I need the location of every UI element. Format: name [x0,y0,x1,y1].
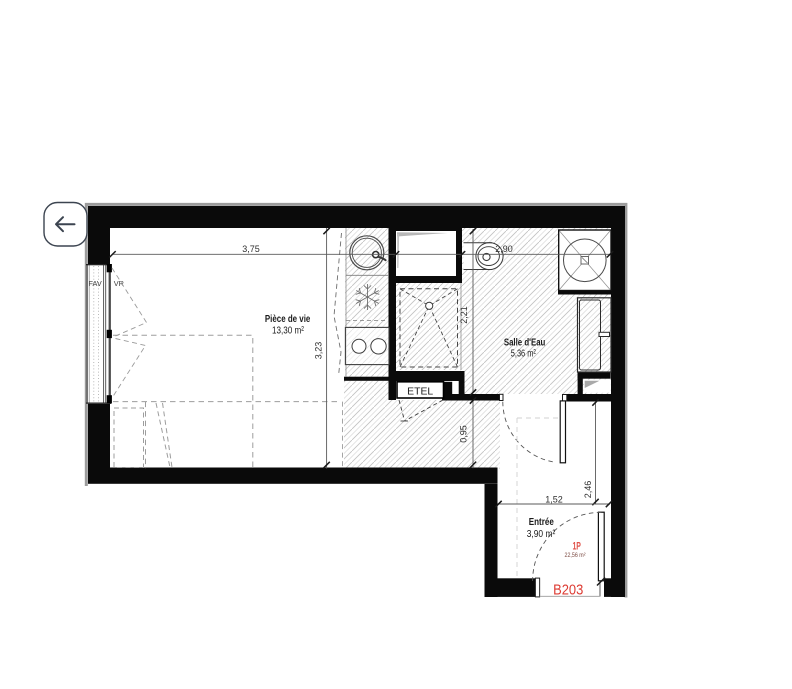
svg-text:3,90 m²: 3,90 m² [527,529,556,540]
svg-text:FAV: FAV [89,279,102,288]
svg-text:0,95: 0,95 [459,425,469,443]
svg-text:1,52: 1,52 [545,494,563,504]
svg-text:Pièce de vie: Pièce de vie [265,313,311,325]
svg-text:3,75: 3,75 [242,244,260,254]
svg-text:ETEL: ETEL [407,387,433,398]
svg-text:1P: 1P [572,540,581,552]
svg-text:Entrée: Entrée [529,516,554,528]
svg-text:VR: VR [114,279,124,288]
svg-text:Salle d'Eau: Salle d'Eau [504,337,546,349]
svg-text:2,21: 2,21 [459,306,469,324]
svg-text:2,46: 2,46 [583,481,593,499]
svg-text:3,23: 3,23 [314,342,324,360]
svg-text:22,56 m²: 22,56 m² [565,552,587,559]
svg-text:5,36 m²: 5,36 m² [511,349,536,360]
svg-text:13,30 m²: 13,30 m² [272,326,305,337]
svg-text:2,90: 2,90 [495,244,513,254]
svg-text:B203: B203 [553,583,583,599]
